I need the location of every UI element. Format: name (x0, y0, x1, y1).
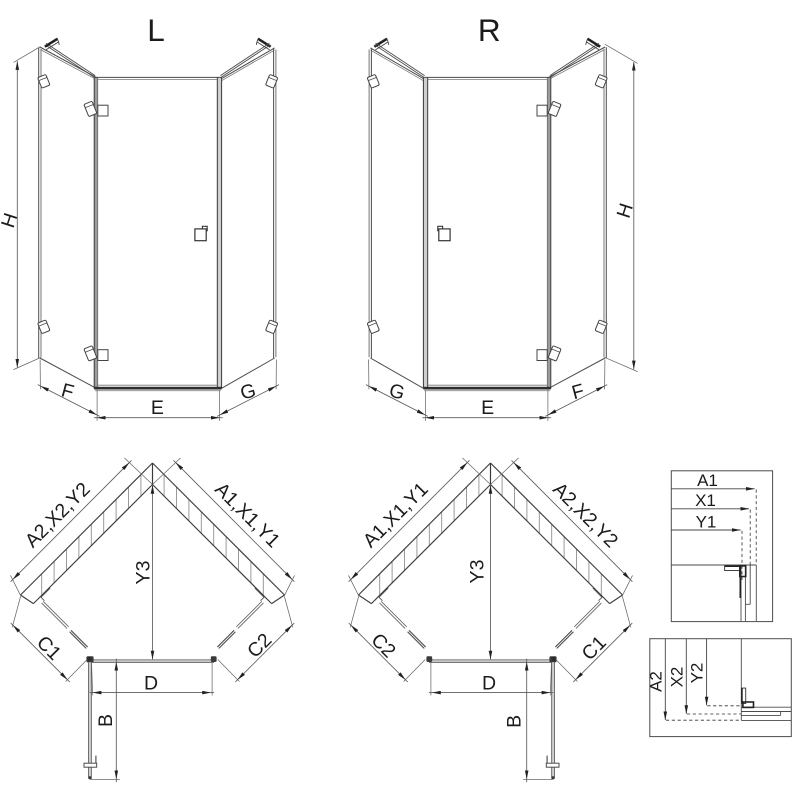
svg-text:F: F (59, 379, 76, 403)
svg-text:G: G (387, 379, 407, 404)
svg-text:X1: X1 (695, 491, 716, 510)
svg-text:Y2: Y2 (688, 663, 707, 684)
svg-text:C1: C1 (32, 632, 65, 665)
svg-text:D: D (144, 672, 158, 694)
svg-text:R: R (478, 12, 501, 48)
svg-text:D: D (482, 672, 496, 694)
svg-text:H: H (613, 201, 638, 221)
svg-text:Y3: Y3 (133, 561, 155, 585)
svg-text:Y1: Y1 (696, 512, 717, 531)
svg-text:C2: C2 (243, 629, 276, 662)
svg-text:B: B (95, 714, 117, 727)
svg-text:F: F (569, 380, 586, 404)
svg-text:H: H (0, 210, 22, 230)
svg-text:A1: A1 (697, 471, 718, 490)
svg-text:B: B (504, 715, 526, 728)
svg-text:X2: X2 (667, 667, 686, 688)
svg-text:A1,X1,Y1: A1,X1,Y1 (210, 478, 284, 552)
svg-text:L: L (147, 12, 165, 48)
svg-text:C2: C2 (367, 629, 400, 662)
svg-text:E: E (481, 397, 494, 419)
svg-text:A2: A2 (647, 671, 666, 692)
svg-text:A1,X1,Y1: A1,X1,Y1 (359, 478, 433, 552)
svg-text:A2,X2,Y2: A2,X2,Y2 (548, 478, 622, 552)
svg-text:A2,X2,Y2: A2,X2,Y2 (21, 478, 95, 552)
svg-text:Y3: Y3 (467, 560, 489, 584)
svg-text:C1: C1 (578, 632, 611, 665)
svg-text:G: G (238, 379, 258, 404)
svg-text:E: E (151, 397, 164, 419)
